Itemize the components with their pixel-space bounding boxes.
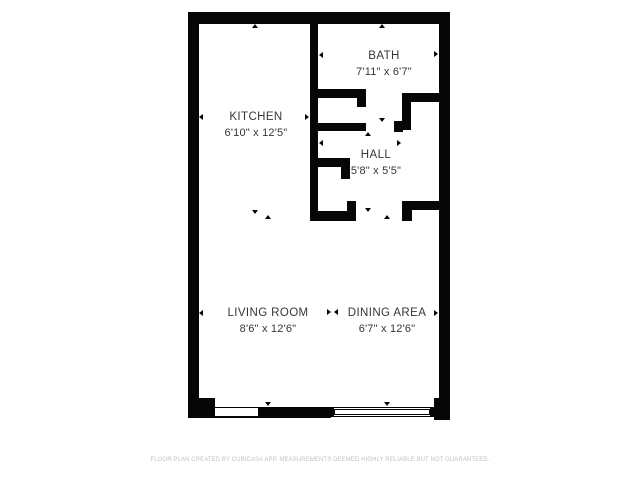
dining-area-dimensions: 6'7" x 12'6": [348, 323, 427, 336]
wall-bottom-middle: [258, 407, 331, 418]
hall-arrow-up-icon: [365, 132, 371, 136]
dining-area-arrow-up-icon: [384, 215, 390, 219]
hall-dimensions: 5'8" x 5'5": [351, 165, 401, 178]
wall-bottom-right-corner: [434, 398, 450, 420]
living-room-arrow-up-icon: [265, 215, 271, 219]
living-room-label: LIVING ROOM 8'6" x 12'6": [227, 307, 308, 336]
living-room-name: LIVING ROOM: [227, 307, 308, 320]
living-room-dimensions: 8'6" x 12'6": [227, 323, 308, 336]
window: [330, 407, 434, 417]
bath-label: BATH 7'11" x 6'7": [356, 50, 412, 79]
wall-bath-bottom-stub: [357, 98, 366, 107]
wall-kitchen-divider: [310, 24, 318, 221]
hall-name: HALL: [351, 149, 401, 162]
wall-right-closet-bottom-stub: [402, 210, 412, 221]
kitchen-arrow-up-icon: [252, 24, 258, 28]
bath-name: BATH: [356, 50, 412, 63]
disclaimer-text: FLOOR PLAN CREATED BY CUBICASA APP. MEAS…: [0, 457, 640, 463]
wall-right-closet-bottom: [402, 201, 439, 210]
hall-arrow-left-icon: [319, 140, 323, 146]
window-right-jamb: [430, 408, 433, 416]
wall-right-closet-foot: [394, 121, 403, 132]
wall-hall-bottom: [310, 211, 356, 221]
bath-arrow-left-icon: [319, 52, 323, 58]
dining-area-arrow-down-icon: [384, 402, 390, 406]
wall-outer-top: [188, 12, 450, 24]
kitchen-label: KITCHEN 6'10" x 12'5": [225, 111, 288, 140]
bath-arrow-down-icon: [379, 118, 385, 122]
bath-dimensions: 7'11" x 6'7": [356, 66, 412, 79]
wall-right-closet-top: [402, 93, 439, 102]
dining-area-name: DINING AREA: [348, 307, 427, 320]
wall-outer-right: [439, 12, 450, 420]
dining-area-arrow-right-icon: [434, 310, 438, 316]
living-room-arrow-left-icon: [199, 310, 203, 316]
wall-right-closet-left: [402, 102, 411, 130]
patio-opening-top-line: [215, 407, 258, 408]
hall-arrow-right-icon: [397, 140, 401, 146]
living-room-arrow-right-icon: [327, 309, 331, 315]
kitchen-arrow-down-icon: [252, 210, 258, 214]
bath-arrow-right-icon: [434, 51, 438, 57]
hall-label: HALL 5'8" x 5'5": [351, 149, 401, 178]
wall-bottom-left-corner: [188, 398, 215, 418]
kitchen-name: KITCHEN: [225, 111, 288, 124]
wall-hall-bottom-stub: [347, 201, 356, 211]
living-room-arrow-down-icon: [265, 402, 271, 406]
dining-area-label: DINING AREA 6'7" x 12'6": [348, 307, 427, 336]
kitchen-arrow-right-icon: [305, 114, 309, 120]
kitchen-dimensions: 6'10" x 12'5": [225, 127, 288, 140]
patio-opening-bottom-line: [215, 416, 258, 418]
wall-hall-closet-jamb: [341, 167, 350, 179]
floor-plan-canvas: KITCHEN 6'10" x 12'5" BATH 7'11" x 6'7" …: [0, 0, 640, 480]
wall-bath-bottom: [318, 89, 366, 98]
window-left-jamb: [331, 408, 334, 416]
bath-arrow-up-icon: [379, 24, 385, 28]
hall-arrow-down-icon: [365, 208, 371, 212]
wall-outer-left: [188, 12, 199, 418]
wall-hall-upper: [318, 123, 366, 131]
wall-hall-closet-top: [318, 158, 350, 167]
kitchen-arrow-left-icon: [199, 114, 203, 120]
window-pane: [334, 409, 430, 415]
dining-area-arrow-left-icon: [334, 309, 338, 315]
